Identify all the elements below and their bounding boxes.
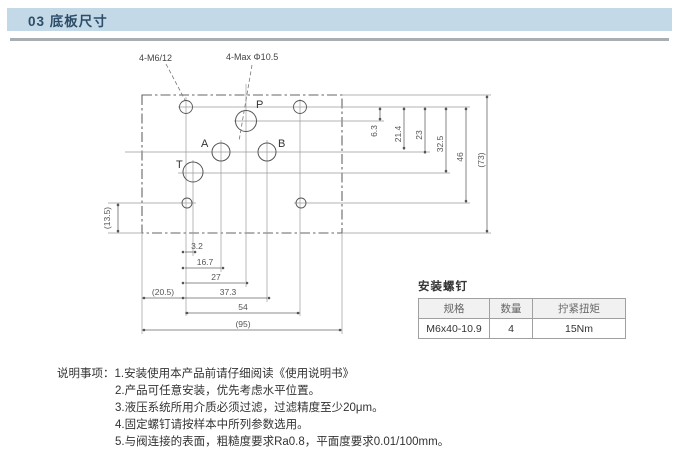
notes-label: 说明事项： — [57, 366, 115, 383]
dim-95: (95) — [235, 319, 250, 329]
notes-section: 说明事项： 1.安装使用本产品前请仔细阅读《使用说明书》 2.产品可任意安装，优… — [57, 366, 637, 451]
note-item-2: 2.产品可任意安装，优先考虑水平位置。 — [115, 383, 637, 400]
table-header-row: 规格 数量 拧紧扭矩 — [419, 299, 626, 319]
dim-20-5: (20.5) — [152, 287, 174, 297]
dim-21-4: 21.4 — [393, 125, 403, 142]
dim-13-5: (13.5) — [102, 207, 112, 229]
port-b-label: B — [278, 138, 285, 150]
catalog-page: 03 底板尺寸 — [0, 0, 679, 457]
plate-outline — [142, 95, 342, 233]
dim-27: 27 — [211, 272, 221, 282]
dim-54: 54 — [238, 302, 248, 312]
cell-qty: 4 — [490, 319, 533, 339]
note-item-5: 5.与阀连接的表面，粗糙度要求Ra0.8，平面度要求0.01/100mm。 — [115, 434, 637, 451]
note-line-1: 说明事项： 1.安装使用本产品前请仔细阅读《使用说明书》 — [57, 366, 637, 383]
mounting-screws-table: 规格 数量 拧紧扭矩 M6x40-10.9 4 15Nm — [418, 298, 626, 339]
dim-23: 23 — [414, 130, 424, 140]
note-item-1: 1.安装使用本产品前请仔细阅读《使用说明书》 — [115, 366, 355, 383]
cell-spec: M6x40-10.9 — [419, 319, 490, 339]
header-qty: 数量 — [490, 299, 533, 319]
note-item-3: 3.液压系统所用介质必须过滤，过滤精度至少20μm。 — [115, 400, 637, 417]
header-spec: 规格 — [419, 299, 490, 319]
dim-73: (73) — [476, 152, 486, 167]
dim-46: 46 — [455, 152, 465, 162]
dim-6-3: 6.3 — [369, 125, 379, 137]
port-a-label: A — [201, 138, 209, 150]
table-row: M6x40-10.9 4 15Nm — [419, 319, 626, 339]
dim-3-2: 3.2 — [191, 241, 203, 251]
cell-torque: 15Nm — [533, 319, 626, 339]
thread-callout: 4-M6/12 — [139, 53, 172, 63]
note-item-4: 4.固定螺钉请按样本中所列参数选用。 — [115, 417, 637, 434]
dim-32-5: 32.5 — [435, 135, 445, 152]
header-torque: 拧紧扭矩 — [533, 299, 626, 319]
screws-table-title: 安装螺钉 — [418, 278, 626, 294]
dim-16-7: 16.7 — [197, 257, 214, 267]
mounting-screws-section: 安装螺钉 规格 数量 拧紧扭矩 M6x40-10.9 4 15Nm — [418, 278, 626, 339]
port-t-label: T — [176, 159, 183, 171]
port-size-callout: 4-Max Φ10.5 — [226, 52, 278, 62]
port-p-label: P — [256, 99, 263, 111]
dim-37-3: 37.3 — [220, 287, 237, 297]
